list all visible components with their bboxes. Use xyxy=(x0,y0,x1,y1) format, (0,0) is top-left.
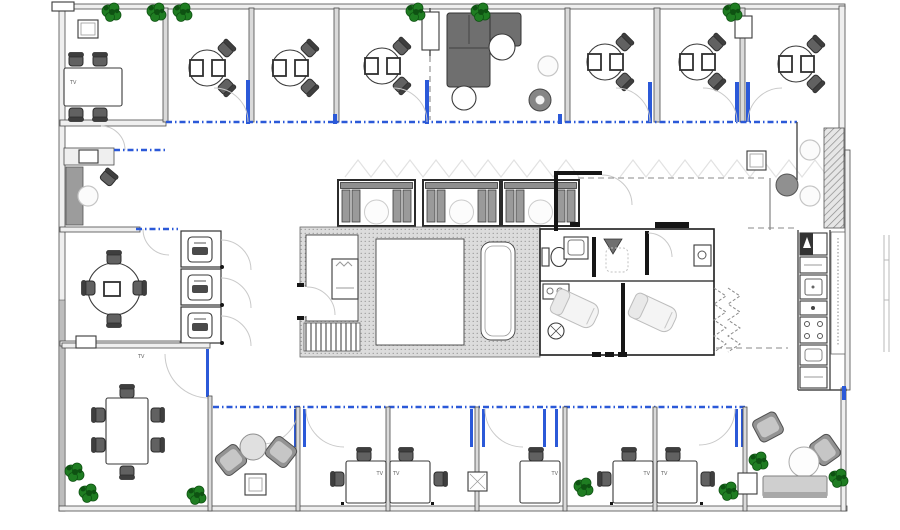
tv-label: TV xyxy=(660,471,668,477)
tv-label: TV xyxy=(376,471,384,477)
door-leaf xyxy=(842,386,846,400)
stool xyxy=(78,186,98,206)
office-workstation xyxy=(778,34,826,93)
wall-segment xyxy=(59,300,65,511)
tv-label: TV xyxy=(551,471,559,477)
office-workstation xyxy=(189,38,237,97)
plant-icon xyxy=(187,486,206,505)
tv-label: TV xyxy=(643,471,651,477)
floor-plan-svg: TV xyxy=(0,0,900,530)
desk xyxy=(520,461,560,503)
phone-booths xyxy=(181,231,251,346)
office-workstation xyxy=(679,32,727,91)
booth-seat-unit xyxy=(502,180,579,226)
partition-wall xyxy=(743,407,747,511)
round-table xyxy=(452,86,476,110)
plant-icon xyxy=(406,3,425,22)
round-table xyxy=(240,434,266,460)
door-swing xyxy=(306,409,344,447)
chair-icon xyxy=(92,438,106,453)
chair-icon xyxy=(151,438,165,453)
wall-segment xyxy=(60,227,140,232)
round-table xyxy=(776,174,798,196)
skylight-box xyxy=(52,2,74,11)
chair-icon xyxy=(69,53,84,67)
door-swing xyxy=(101,126,125,150)
office-workstation xyxy=(364,36,412,95)
armchair xyxy=(263,435,298,470)
wall-segment xyxy=(59,506,847,511)
floor-plan: TV xyxy=(0,0,900,530)
bar-counter xyxy=(824,128,844,228)
chair-icon xyxy=(120,466,135,480)
restrooms xyxy=(540,222,740,357)
stair-grille xyxy=(304,323,360,351)
partition-wall xyxy=(653,407,657,511)
door-swing xyxy=(485,409,523,447)
kitchenette xyxy=(798,230,847,390)
phone-booth xyxy=(181,269,221,305)
wall-segment xyxy=(841,388,846,511)
central-core xyxy=(297,227,540,357)
plant-icon xyxy=(829,469,848,488)
door-opening xyxy=(299,287,307,316)
partition-wall xyxy=(208,396,212,511)
wall-segment xyxy=(554,171,558,231)
partition-wall xyxy=(654,8,660,122)
partition-wall xyxy=(386,407,390,511)
bench-sofa-edge xyxy=(763,492,827,498)
chair-icon xyxy=(107,314,122,328)
stool xyxy=(538,56,558,76)
door-swing xyxy=(703,88,737,122)
plant-icon xyxy=(723,3,742,22)
booth-seat-unit xyxy=(338,180,415,226)
door-leaf xyxy=(555,409,558,447)
chair-icon xyxy=(357,448,372,462)
side-table xyxy=(245,474,266,495)
chair-icon xyxy=(93,53,108,67)
printer xyxy=(79,150,98,163)
chair-icon xyxy=(701,472,715,487)
appliance-oven xyxy=(800,345,827,365)
desk xyxy=(613,461,653,503)
door-leaf xyxy=(543,409,546,447)
toilet-tank xyxy=(542,248,549,266)
door-swing xyxy=(602,175,632,205)
door-swing xyxy=(221,240,251,270)
label-strip xyxy=(831,232,845,354)
terrace-edge xyxy=(884,235,889,352)
lounge-bottom-left xyxy=(213,434,298,495)
office-workstation xyxy=(587,32,635,91)
door-swing xyxy=(143,229,169,255)
chair-icon xyxy=(622,448,637,462)
reception-area xyxy=(64,126,166,225)
plant-icon xyxy=(749,452,768,471)
door-leaf xyxy=(482,409,485,447)
sink-counter xyxy=(694,245,711,266)
round-table xyxy=(789,447,819,477)
wall-segment xyxy=(592,237,596,277)
chair-icon xyxy=(399,448,414,462)
wall-segment xyxy=(570,222,580,227)
booth-seating-row xyxy=(338,180,579,226)
partition-wall xyxy=(163,8,168,122)
armchair xyxy=(751,410,785,443)
door-swing xyxy=(393,88,427,122)
stool xyxy=(800,186,820,206)
chair-icon xyxy=(69,108,84,122)
partition-wall xyxy=(565,8,570,122)
chair-icon xyxy=(107,251,122,265)
shaft xyxy=(481,242,515,340)
round-table xyxy=(489,34,515,60)
chair-icon xyxy=(93,108,108,122)
meeting-room-bottom-left: TV xyxy=(62,336,212,511)
desk xyxy=(346,461,386,503)
sink-icon xyxy=(568,240,584,255)
chair-icon xyxy=(120,385,135,399)
top-glass-partition xyxy=(166,80,797,180)
door-leaf xyxy=(206,349,209,397)
plant-icon xyxy=(65,463,84,482)
door-swing xyxy=(165,354,209,398)
chair-icon xyxy=(133,281,147,296)
bottom-offices: TV TV TV TV TV xyxy=(296,407,747,511)
desk xyxy=(657,461,697,503)
plant-icon xyxy=(719,482,738,501)
cooktop xyxy=(800,317,827,343)
door-swing xyxy=(748,88,782,122)
chair-icon xyxy=(434,472,448,487)
chair-icon xyxy=(151,408,165,423)
door-leaf xyxy=(303,409,306,447)
wall-segment xyxy=(655,222,689,228)
wall-segment xyxy=(645,231,649,275)
tv-label: TV xyxy=(137,354,145,360)
booth-seat-unit xyxy=(423,180,500,226)
partition-wall xyxy=(296,407,300,511)
chair-icon xyxy=(82,281,96,296)
door-leaf xyxy=(735,409,738,447)
desk xyxy=(390,461,430,503)
chair-icon xyxy=(99,167,119,187)
door-swing xyxy=(221,278,251,308)
plant-icon xyxy=(173,3,192,22)
office-workstation xyxy=(272,38,320,97)
top-lounge xyxy=(447,13,558,111)
partition-wall xyxy=(563,407,567,511)
folding-partition xyxy=(714,288,726,352)
door-leaf xyxy=(558,114,562,124)
phone-booth xyxy=(181,231,221,267)
phone-booth xyxy=(181,307,221,343)
door-leaf xyxy=(470,409,473,447)
wall-segment xyxy=(845,150,850,390)
meeting-table xyxy=(64,68,122,106)
chair-icon xyxy=(331,472,345,487)
wall-box xyxy=(76,336,96,348)
wall-segment xyxy=(554,171,602,175)
cabinet xyxy=(738,473,757,494)
folding-partition xyxy=(728,288,740,352)
plant-icon xyxy=(147,3,166,22)
middle-left-office xyxy=(60,227,180,346)
wall-segment xyxy=(621,283,625,353)
elevator-room xyxy=(376,239,464,345)
l-sofa xyxy=(447,13,490,87)
tv-label: TV xyxy=(392,471,400,477)
conference-table xyxy=(106,398,148,464)
tv-label: TV xyxy=(69,80,77,86)
door-swing xyxy=(221,316,251,346)
plant-icon xyxy=(102,3,121,22)
monitor xyxy=(104,282,120,296)
door-swing xyxy=(616,88,650,122)
plant-icon xyxy=(79,484,98,503)
partition-wall xyxy=(475,407,479,511)
chair-icon xyxy=(529,448,544,462)
chair-icon xyxy=(666,448,681,462)
door-leaf xyxy=(333,114,337,124)
door-swing xyxy=(699,409,735,445)
partition-wall xyxy=(334,8,339,122)
chair-icon xyxy=(598,472,612,487)
chair-icon xyxy=(92,408,106,423)
plant-icon xyxy=(574,478,593,497)
lounge-chair-seat xyxy=(536,96,545,105)
stool xyxy=(800,140,820,160)
